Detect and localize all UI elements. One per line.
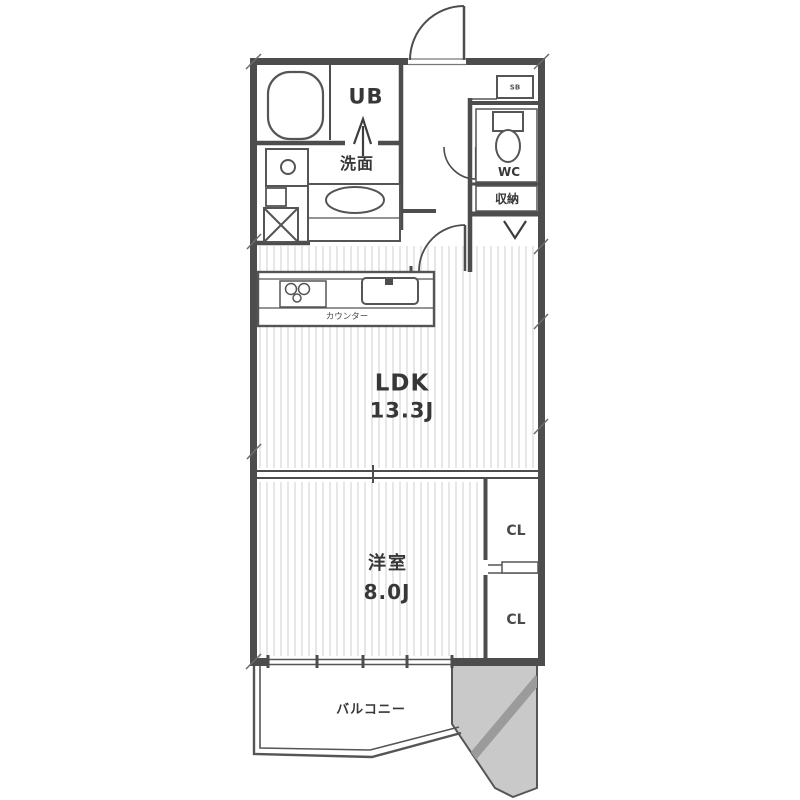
label-closet-lower: CL [506,613,525,627]
label-balcony: バルコニー [336,704,406,717]
floorplan-canvas: UB 洗面 WC 収納 SB カウンター LDK 13.3J 洋室 8.0J C… [0,0,800,800]
storage-door-chevron [504,221,526,238]
label-shoe-box: SB [510,85,520,92]
label-ldk: LDK [375,373,430,396]
stove-burners [280,281,326,307]
bedroom-window [268,655,452,668]
vanity-sink [308,184,400,241]
neighbor-structure [452,663,539,797]
entrance-door [408,6,466,66]
bathtub [268,72,323,139]
folding-door-symbol [354,119,371,156]
toilet [493,112,523,162]
label-washroom: 洗面 [340,156,374,172]
kitchen-sink [362,278,418,304]
washroom-cabinet [266,149,308,206]
label-closet-upper: CL [506,524,525,538]
label-storage: 収納 [495,193,519,205]
label-kitchen-counter: カウンター [326,313,369,322]
label-ldk-area: 13.3J [370,401,435,422]
shoe-box [470,76,533,99]
label-bedroom: 洋室 [368,555,408,573]
label-wc: WC [498,166,520,178]
label-bedroom-area: 8.0J [364,582,411,602]
washing-machine-pan [264,208,298,242]
label-unit-bath: UB [348,87,383,108]
floorplan: UB 洗面 WC 収納 SB カウンター LDK 13.3J 洋室 8.0J C… [0,0,800,800]
closet-divider [488,562,540,573]
